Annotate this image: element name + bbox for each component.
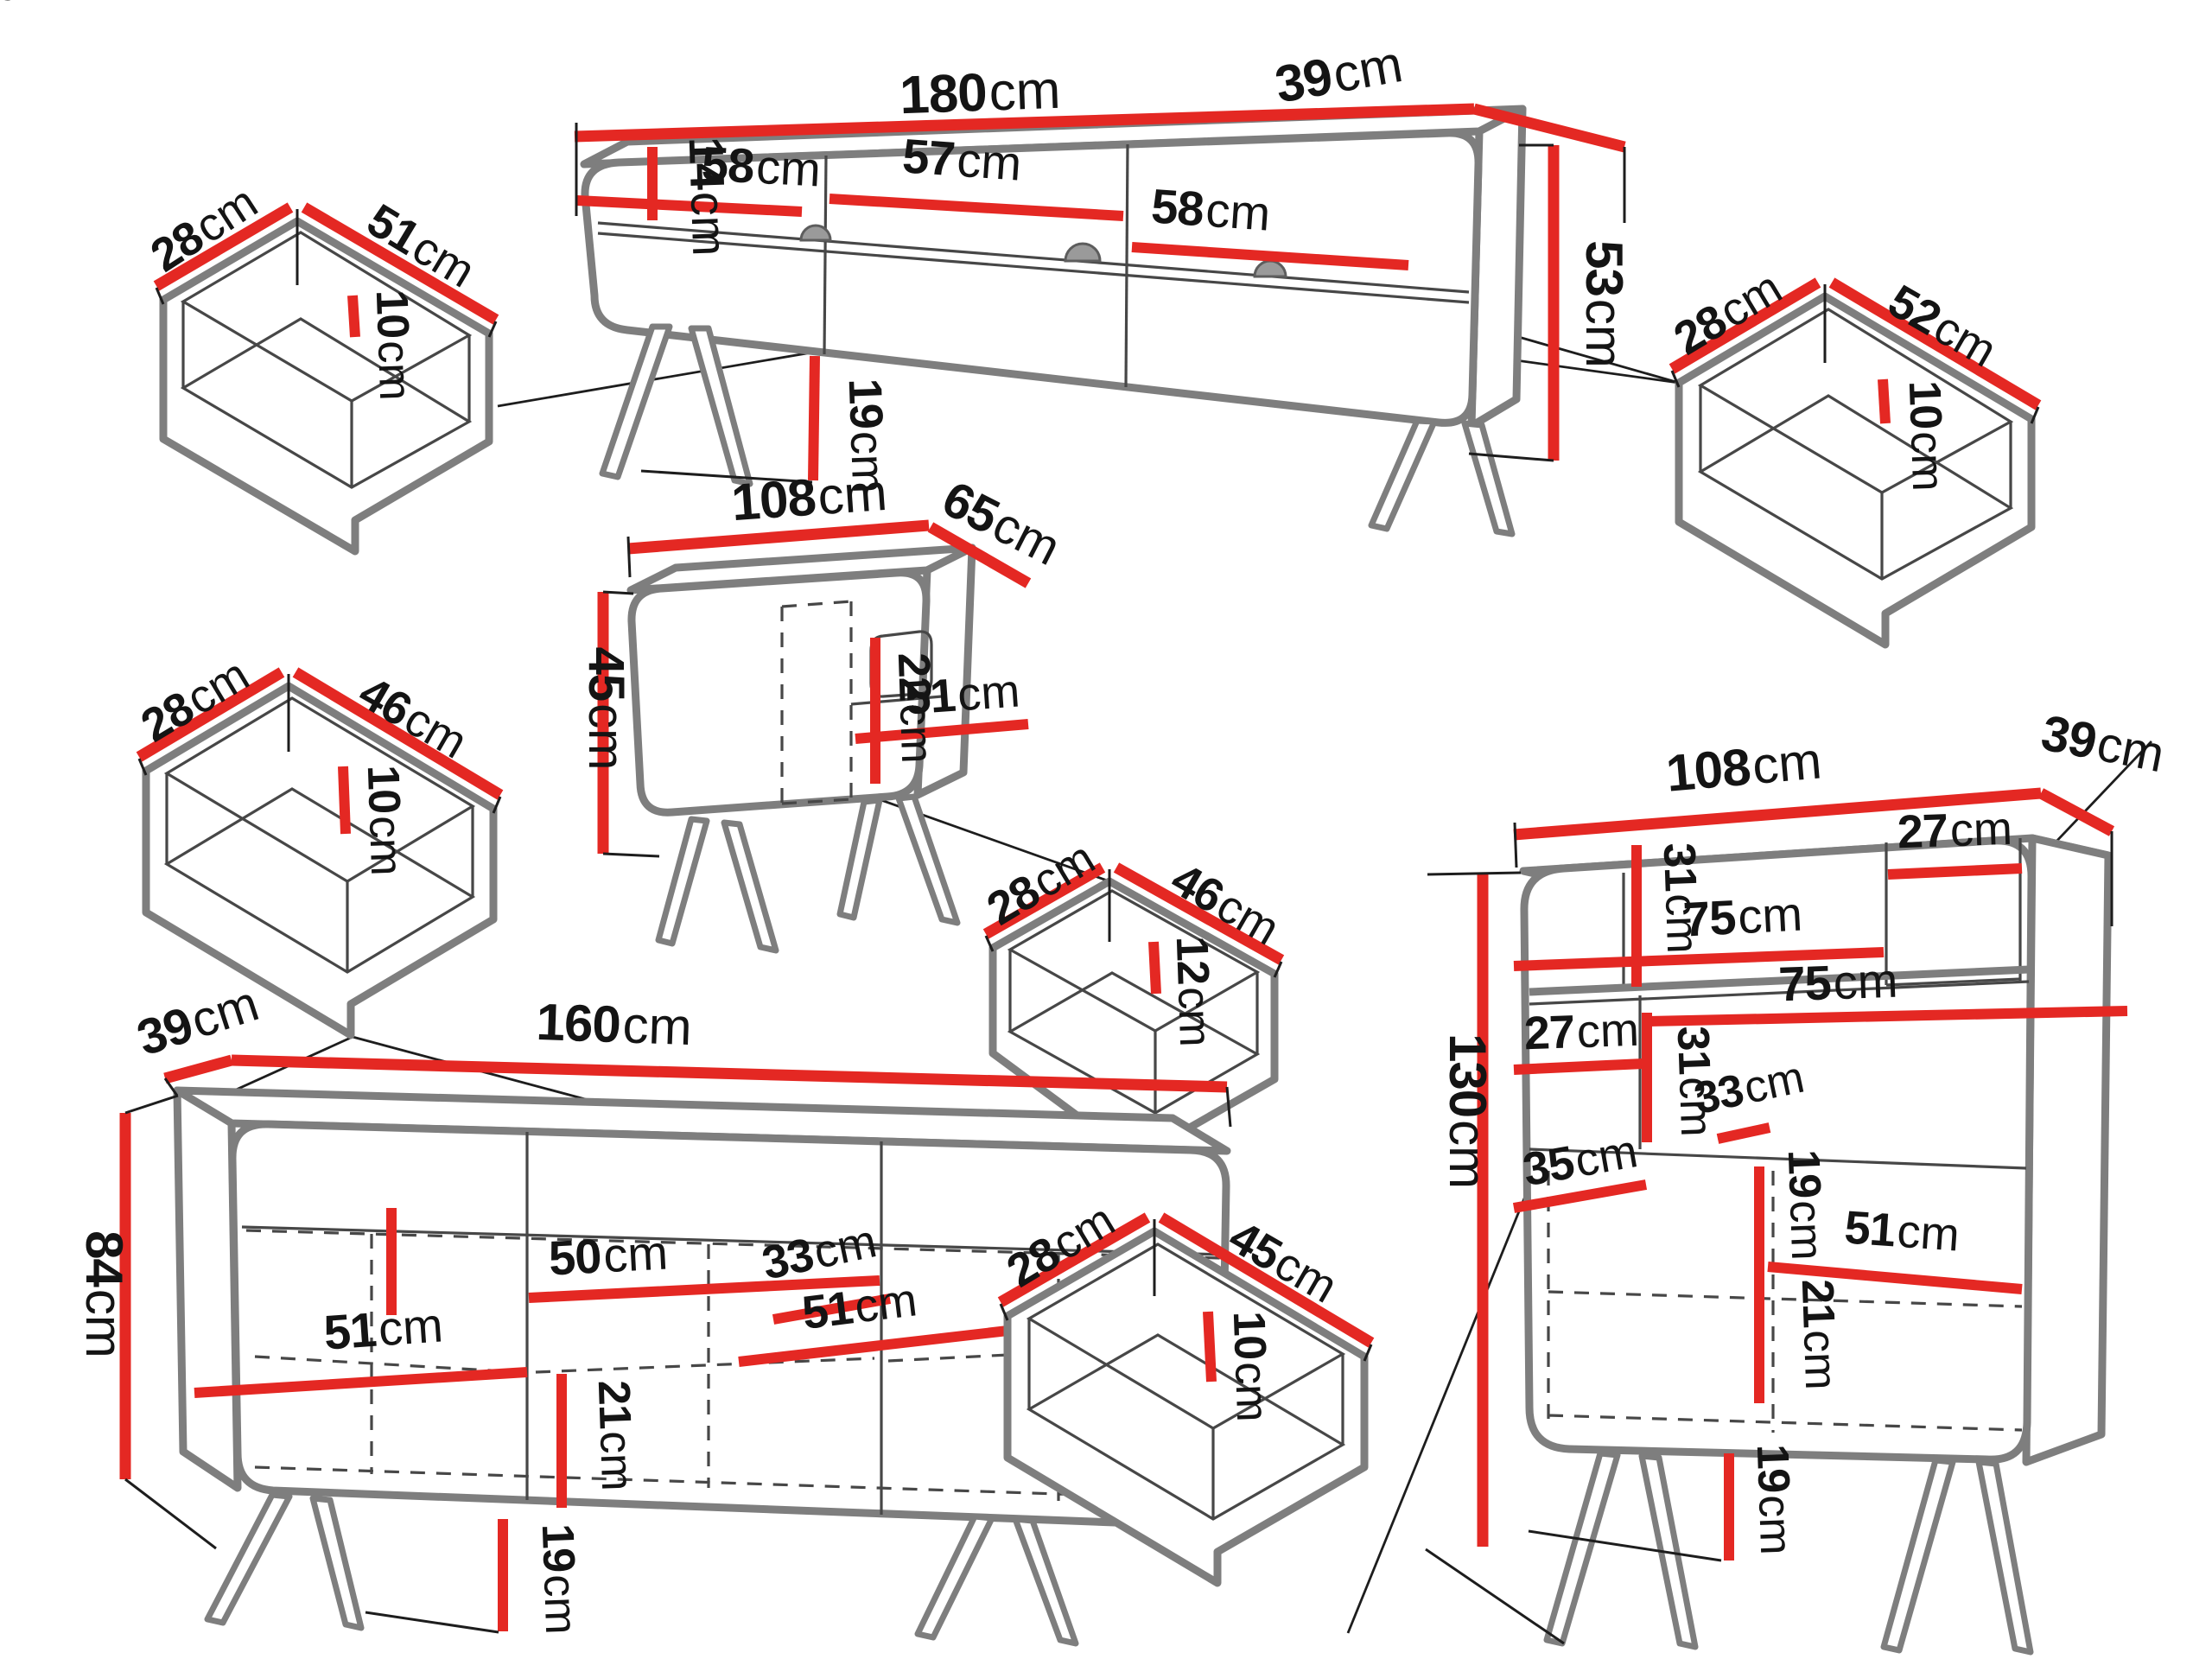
dim-label-sb-51l: 51cm (322, 1297, 445, 1359)
dim-label-sb-22: 22cm (0, 0, 55, 10)
dim-tick (1515, 823, 1516, 868)
sideboard-leg (918, 1516, 992, 1637)
dim-label-bk-leg: 19cm (1747, 1443, 1801, 1555)
dim-line-drawer-height (1154, 942, 1156, 994)
dim-line-drawer-height (1208, 1312, 1211, 1382)
dim-label-bk-51: 51cm (1843, 1201, 1961, 1261)
dim-label-ct-width: 108cm (729, 463, 888, 531)
sideboard-leg (207, 1495, 289, 1623)
dim-label-ct-niche-width: 51cm (903, 664, 1021, 724)
dim-line-drawer-height (1883, 379, 1885, 423)
dim-line-drawer-height (353, 296, 355, 337)
dim-label-tv-niche1: 58cm (700, 136, 822, 196)
dim-label-d3-height: 10cm (358, 764, 411, 876)
leader-line (1348, 1175, 1534, 1633)
dim-line-tv-leg (813, 356, 815, 480)
dim-label-tv-width: 180cm (899, 60, 1061, 125)
dim-label-tv-height: 53cm (1575, 240, 1633, 368)
tv-stand-leg (1371, 421, 1434, 529)
tv-stand-leg (1465, 423, 1512, 534)
dim-tick (1426, 1549, 1564, 1643)
dim-label-bk-width: 108cm (1664, 731, 1824, 802)
dim-label-bk-height: 130cm (1439, 1033, 1497, 1189)
dim-label-sb-depth: 39cm (130, 975, 265, 1066)
dim-label-bk-depth: 39cm (2037, 704, 2169, 783)
dim-label-sb-50: 50cm (547, 1224, 669, 1285)
furniture-dimensions-diagram: 180cm 39cm 53cm 14cm 58cm 57cm 58cm 19cm… (0, 0, 2212, 1659)
dim-label-tv-niche3: 58cm (1149, 178, 1272, 240)
tv-stand-leg (602, 327, 670, 477)
coffee-table (603, 525, 1028, 950)
dim-label-bk-27l: 27cm (1523, 1004, 1640, 1060)
dim-label-sb-21: 21cm (588, 1379, 642, 1491)
dim-tick (603, 592, 633, 594)
dim-label-sb-height: 84cm (75, 1230, 133, 1358)
dim-tick (1427, 873, 1521, 874)
dim-label-d4-height: 12cm (1166, 935, 1220, 1047)
dim-label-bk-27t: 27cm (1897, 803, 2013, 859)
sideboard-leg (1015, 1519, 1076, 1643)
dim-line-bk-depth (2041, 793, 2112, 831)
dim-tick (628, 537, 630, 577)
dim-label-d5-height: 10cm (1224, 1310, 1277, 1422)
dim-label-d1-height: 10cm (366, 289, 420, 401)
dim-line-drawer-height (343, 766, 346, 834)
bookcase-leg (1884, 1460, 1953, 1650)
dim-label-bk-19i: 19cm (1778, 1148, 1832, 1261)
dim-label-bk-75u: 75cm (1681, 886, 1803, 946)
dim-line-bk-27l (1514, 1064, 1643, 1070)
dim-tick (603, 854, 659, 856)
dim-tick (125, 1096, 178, 1113)
dim-label-tv-niche2: 57cm (900, 128, 1023, 190)
dim-label-sb-leg: 19cm (532, 1522, 586, 1635)
dim-line-bk-27t (1888, 868, 2022, 874)
tv-stand-divider (1126, 144, 1128, 387)
dim-label-d2-height: 10cm (1899, 379, 1953, 492)
diagram-canvas: 180cm 39cm 53cm 14cm 58cm 57cm 58cm 19cm… (0, 0, 2212, 1659)
tv-stand-leg (691, 328, 750, 484)
coffee-table-leg (840, 800, 880, 918)
coffee-table-leg (724, 823, 776, 950)
dim-label-bk-75m: 75cm (1777, 953, 1898, 1012)
bookcase-leg (1979, 1462, 2031, 1652)
dim-label-sb-width: 160cm (536, 993, 693, 1056)
dim-line-ct-width (628, 525, 929, 549)
sideboard-side-face (177, 1090, 238, 1488)
dim-label-tv-depth: 39cm (1271, 35, 1407, 114)
dim-tick (125, 1479, 216, 1548)
sideboard-leg (313, 1498, 361, 1628)
dim-tick (365, 1612, 499, 1632)
dim-line-sb-depth (165, 1060, 232, 1078)
coffee-table-leg (658, 819, 707, 944)
dim-label-bk-21: 21cm (1792, 1278, 1846, 1390)
coffee-table-front-face (632, 573, 926, 812)
dim-label-ct-height: 45cm (578, 647, 634, 771)
tv-stand-divider (824, 156, 826, 354)
bookcase-leg (1547, 1453, 1618, 1643)
dim-tick (1529, 1531, 1721, 1560)
bookcase-side-face (2026, 838, 2108, 1462)
